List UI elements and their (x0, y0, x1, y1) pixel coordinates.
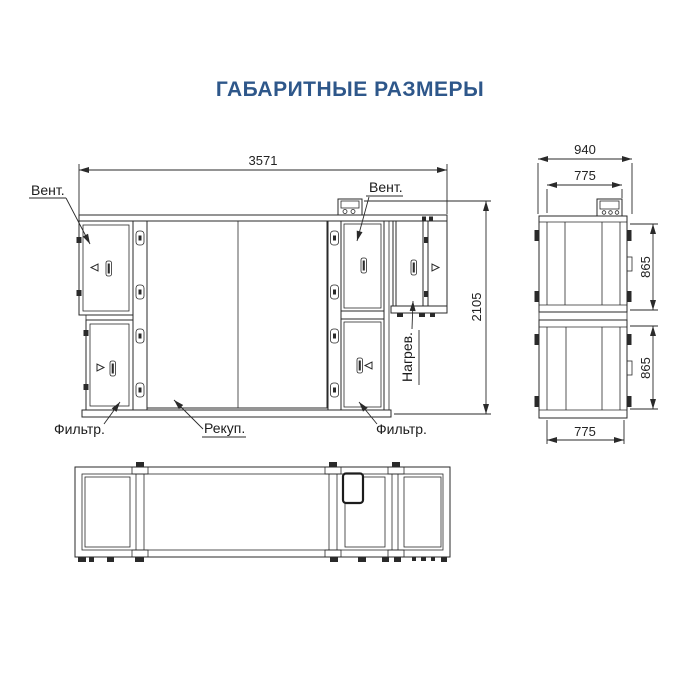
control-box-front (338, 199, 362, 215)
door-handle (110, 361, 116, 376)
dim-text-section-height-top: 865 (638, 256, 653, 278)
front-view: 3571 2105 (29, 153, 491, 437)
frame-post-left (133, 221, 147, 410)
bottom-post-3 (388, 467, 404, 557)
bottom-post-2 (325, 467, 341, 557)
filter-section-left (84, 320, 134, 410)
dimension-section-height-bottom: 865 (630, 326, 658, 409)
latch-icon (627, 291, 632, 302)
latch-icon (136, 383, 144, 397)
heater-label: Нагрев. (399, 332, 415, 382)
latch-icon (331, 285, 339, 299)
bottom-post-1 (132, 467, 148, 557)
control-box-side (597, 199, 622, 216)
door-handle (357, 358, 363, 373)
airflow-left-icon (91, 264, 98, 271)
hinge-icon (84, 384, 89, 390)
latch-icon (535, 230, 540, 241)
filter-section-right (341, 319, 384, 410)
frame-post-right (328, 221, 341, 410)
airflow-right-icon (432, 264, 439, 271)
dimensional-drawing-page: ГАБАРИТНЫЕ РАЗМЕРЫ 3571 2105 (0, 0, 700, 700)
page-title: ГАБАРИТНЫЕ РАЗМЕРЫ (216, 78, 484, 101)
door-handle (411, 260, 417, 275)
door-handle (106, 261, 112, 276)
bottom-view (75, 462, 450, 562)
dim-text-width-bottom: 775 (574, 424, 596, 439)
door-handle (361, 258, 367, 273)
bolt (329, 462, 337, 467)
callout-fan-left: Вент. (29, 182, 90, 244)
latch-icon (136, 231, 144, 245)
fan-left-label: Вент. (31, 182, 65, 198)
latch-icon (627, 230, 632, 241)
dim-text-depth: 940 (574, 142, 596, 157)
side-view: 940 775 (535, 142, 659, 444)
callout-filter-left: Фильтр. (54, 402, 120, 437)
latch-icon (627, 396, 632, 407)
dimension-width-top: 775 (547, 168, 622, 213)
fan-section-right (341, 221, 384, 311)
latch-icon (136, 285, 144, 299)
latch-icon (535, 291, 540, 302)
airflow-left-icon (365, 362, 372, 369)
door-handle (627, 257, 632, 271)
hinge-icon (84, 330, 89, 336)
dim-text-overall-height: 2105 (469, 293, 484, 322)
hinge-icon (77, 237, 82, 243)
bolt (392, 462, 400, 467)
latch-icon (535, 334, 540, 345)
filter-left-label: Фильтр. (54, 421, 105, 437)
dimension-section-height-top: 865 (630, 224, 658, 310)
recuperator-label: Рекуп. (204, 420, 245, 436)
feet (78, 557, 447, 562)
latch-icon (331, 329, 339, 343)
filter-right-label: Фильтр. (376, 421, 427, 437)
foot (397, 313, 403, 317)
door-handle (627, 361, 632, 375)
dim-text-width-top: 775 (574, 168, 596, 183)
side-bottom-section (535, 320, 633, 418)
foot (419, 313, 425, 317)
heater-section (391, 221, 447, 317)
latch-icon (136, 329, 144, 343)
bolt (136, 462, 144, 467)
dim-text-overall-width: 3571 (249, 153, 278, 168)
latch-icon (331, 383, 339, 397)
latch-icon (331, 231, 339, 245)
airflow-right-icon (97, 364, 104, 371)
drawing-canvas: ГАБАРИТНЫЕ РАЗМЕРЫ 3571 2105 (0, 0, 700, 700)
side-top-section (535, 216, 633, 312)
fan-right-label: Вент. (369, 179, 403, 195)
foot (430, 313, 435, 317)
recuperator-section (147, 221, 327, 408)
front-bottom-rail (82, 410, 391, 417)
dim-text-section-height-bottom: 865 (638, 357, 653, 379)
front-top-rail (79, 215, 447, 221)
callout-recuperator: Рекуп. (174, 400, 246, 437)
latch-icon (535, 396, 540, 407)
duct-opening (343, 474, 363, 504)
dimension-width-bottom: 775 (547, 420, 624, 444)
hinge-icon (77, 290, 82, 296)
latch-icon (627, 334, 632, 345)
